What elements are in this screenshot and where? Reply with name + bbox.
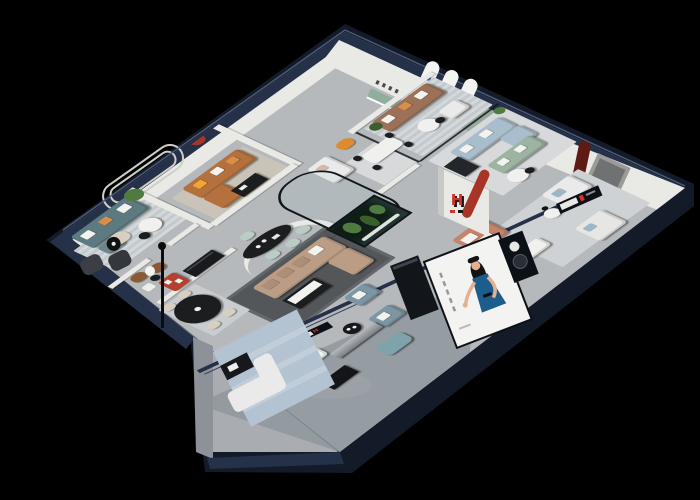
pillow <box>307 245 324 256</box>
pillow <box>513 144 527 153</box>
accent-chair-orange <box>333 137 357 152</box>
corner-pillar <box>193 337 213 459</box>
pillow <box>459 144 474 153</box>
pillow <box>209 166 224 175</box>
pillow <box>98 216 113 225</box>
pillow <box>376 312 391 321</box>
shelf-slot <box>174 278 183 283</box>
cup <box>346 327 352 331</box>
ottoman-teal <box>374 331 414 356</box>
pillow <box>413 90 428 99</box>
pillow <box>496 158 510 167</box>
sign-panel <box>297 331 313 340</box>
bowl <box>193 306 203 312</box>
bench-white-porch <box>292 347 329 370</box>
shelf-slot <box>164 280 173 285</box>
pillow <box>551 188 566 197</box>
paper <box>271 234 280 240</box>
pillow <box>582 223 596 232</box>
showroom-render: H <box>0 0 700 500</box>
pillow <box>225 156 240 165</box>
pillow <box>80 230 97 240</box>
pillow <box>351 290 366 299</box>
barrel-chair <box>147 261 169 274</box>
pillow <box>260 279 279 291</box>
pillow <box>192 180 207 189</box>
vase <box>255 245 262 249</box>
pedestal <box>141 283 156 292</box>
cactus <box>339 220 365 235</box>
pillow <box>478 129 493 138</box>
pillow <box>116 203 133 213</box>
cup <box>351 325 357 329</box>
vase <box>260 239 267 243</box>
cactus <box>366 203 389 216</box>
pillow <box>291 256 310 268</box>
tray <box>238 185 247 191</box>
pillow <box>275 267 294 279</box>
pillow <box>398 102 413 111</box>
bench-black-porch <box>320 365 359 390</box>
pillow <box>381 114 396 123</box>
